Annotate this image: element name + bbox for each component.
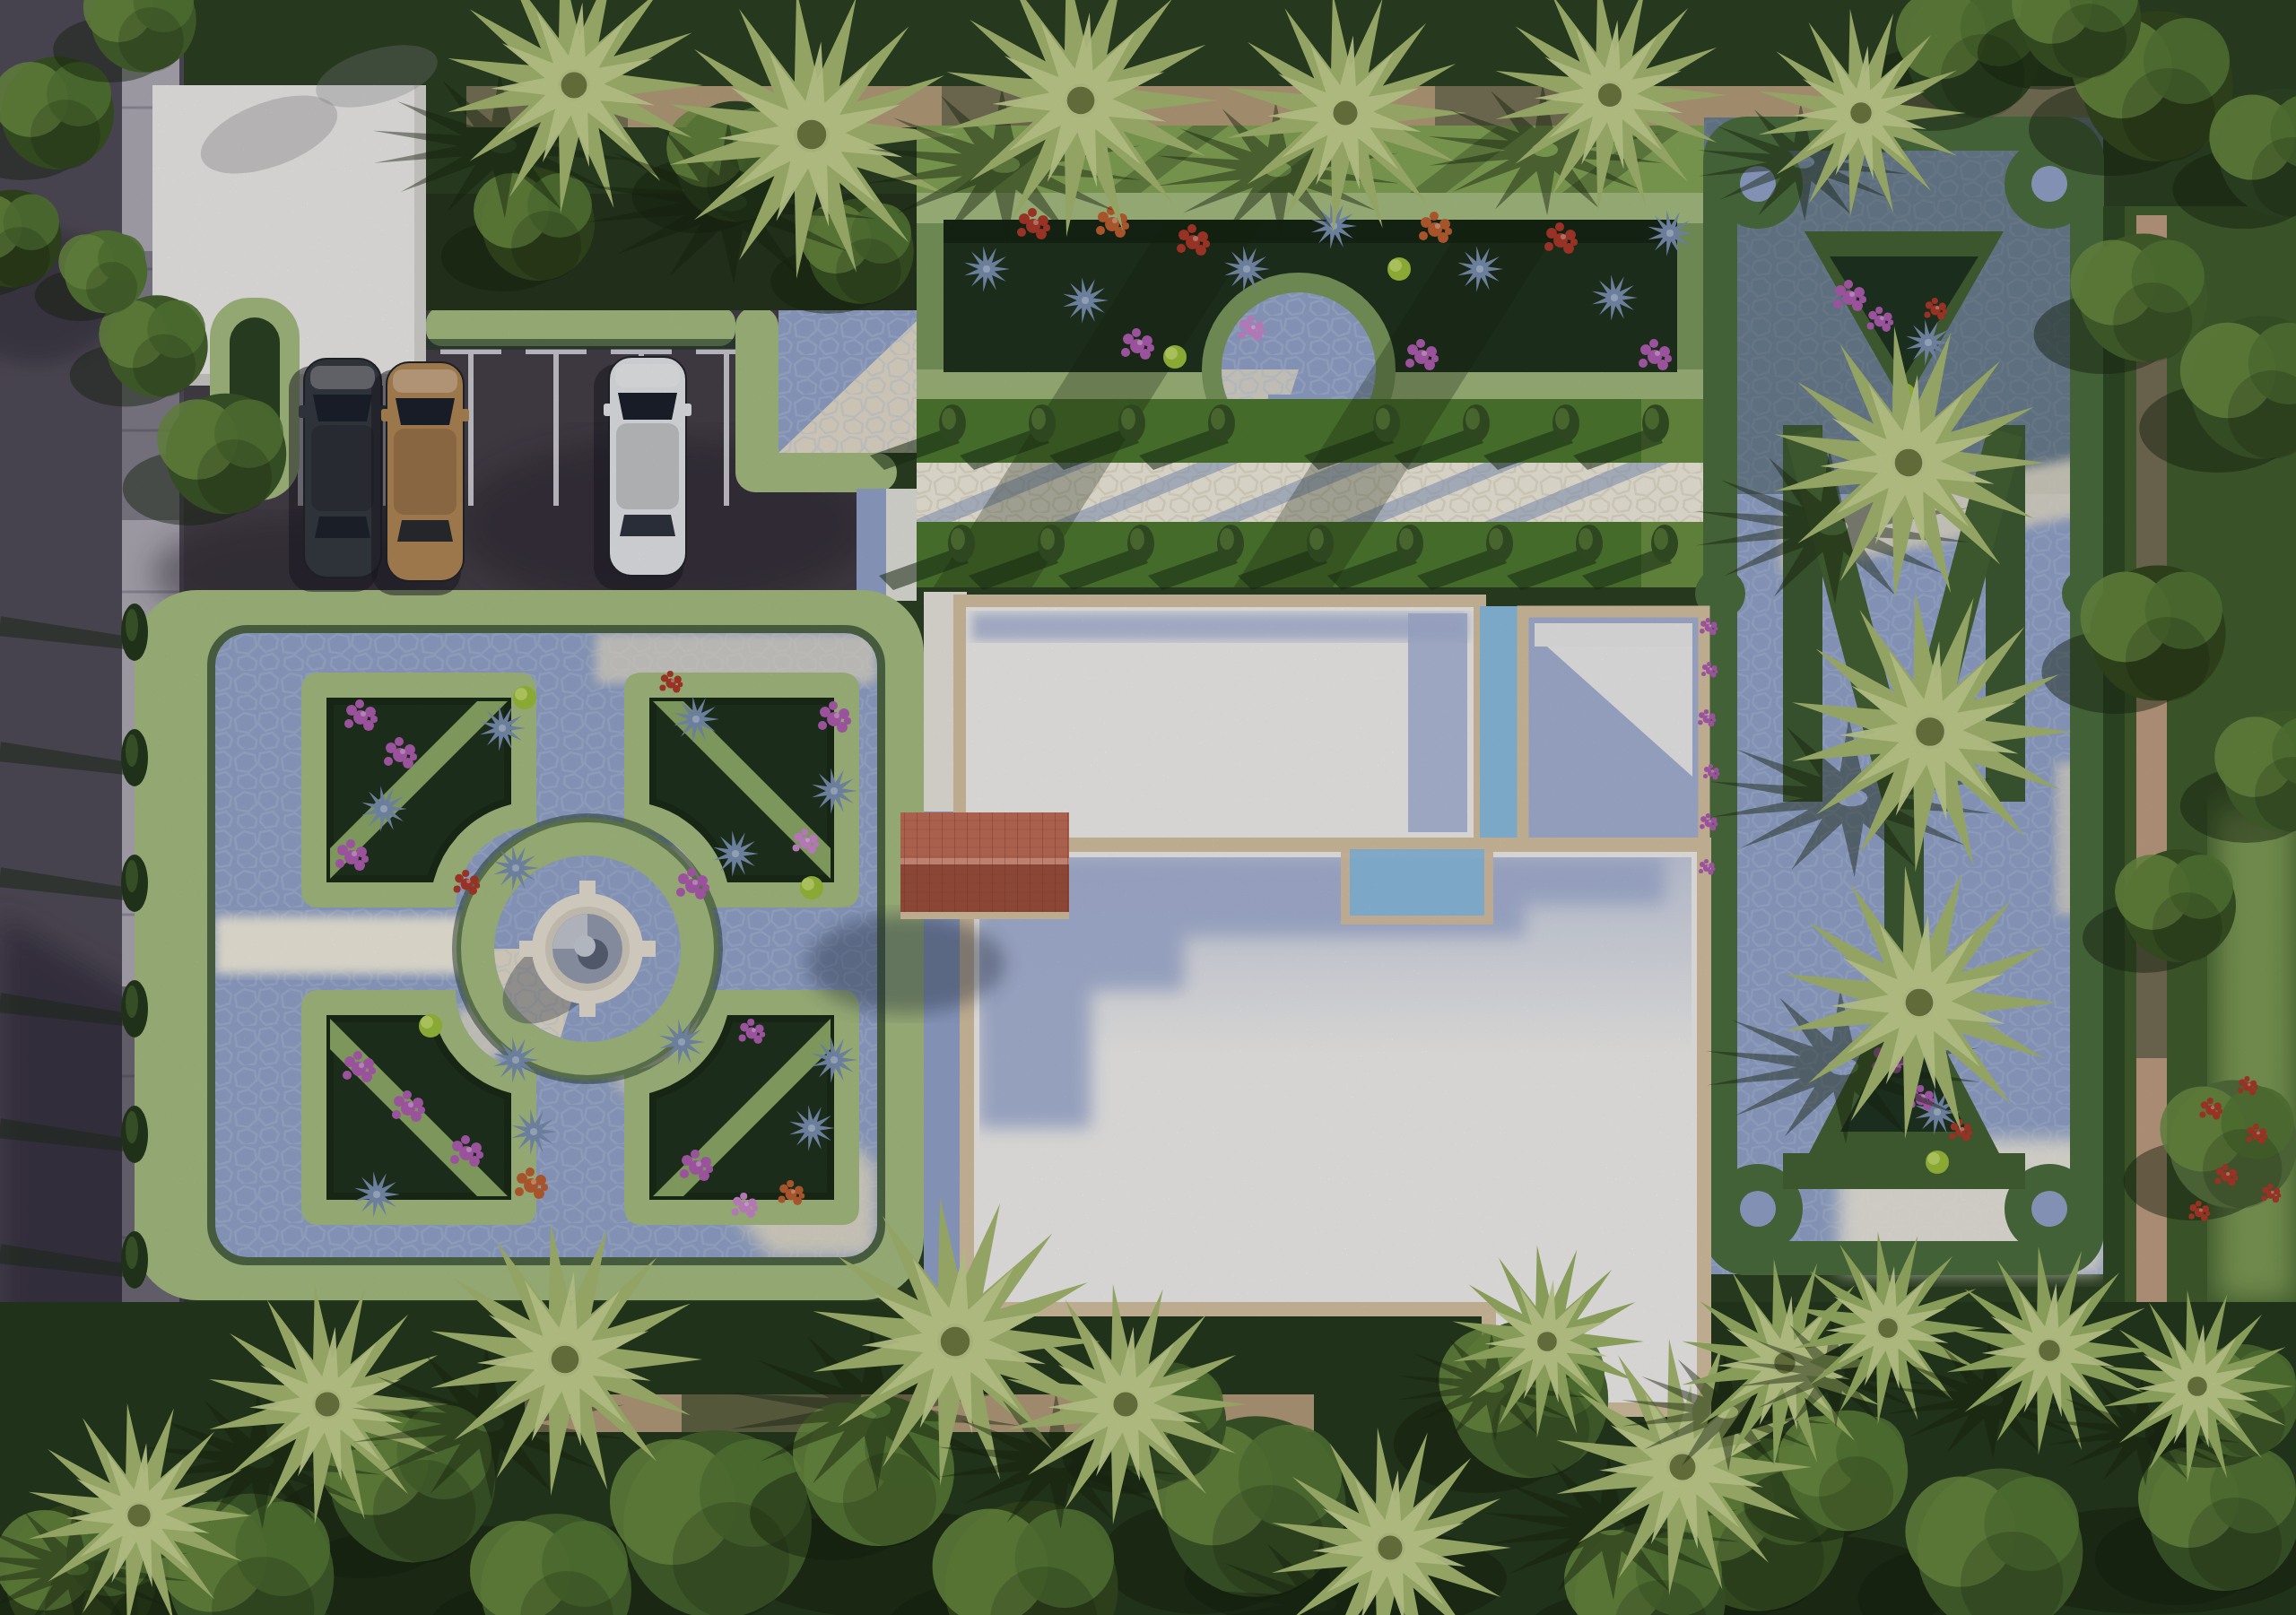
aerial-site-plan-image: Aerial top-down rendering of a formal vi… [0, 0, 2296, 1615]
aerial-render-stage: Aerial top-down rendering of a formal vi… [0, 0, 2296, 1615]
grain-overlay [0, 0, 2296, 1615]
